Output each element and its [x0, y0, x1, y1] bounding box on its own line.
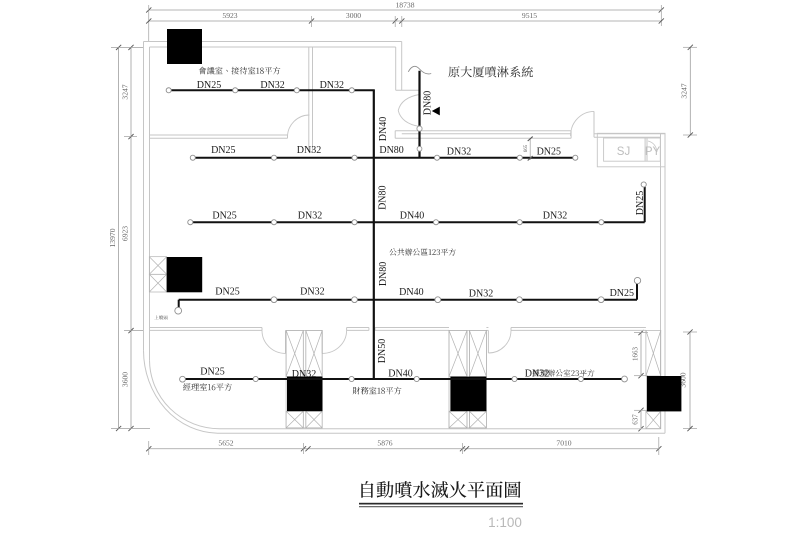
svg-text:3247: 3247: [680, 83, 689, 98]
svg-text:DN50: DN50: [377, 339, 388, 363]
svg-text:3600: 3600: [121, 372, 130, 387]
svg-text:DN40: DN40: [388, 369, 412, 380]
svg-text:DN32: DN32: [543, 211, 567, 222]
svg-text:13970: 13970: [108, 228, 117, 247]
svg-text:DN25: DN25: [200, 367, 224, 378]
svg-text:5923: 5923: [222, 11, 237, 20]
svg-text:DN80: DN80: [423, 91, 434, 115]
svg-text:1663: 1663: [631, 347, 639, 362]
svg-text:DN32: DN32: [298, 211, 322, 222]
svg-text:6923: 6923: [121, 226, 130, 241]
svg-text:3000: 3000: [346, 11, 361, 20]
svg-text:DN40: DN40: [378, 117, 389, 141]
svg-text:DN25: DN25: [215, 287, 239, 298]
svg-text:7010: 7010: [556, 439, 571, 448]
svg-text:9515: 9515: [522, 11, 537, 20]
svg-text:DN80: DN80: [379, 145, 403, 156]
svg-text:DN25: DN25: [537, 147, 561, 158]
svg-text:DN32: DN32: [300, 287, 324, 298]
svg-text:DN32: DN32: [447, 147, 471, 158]
svg-text:DN25: DN25: [212, 211, 236, 222]
svg-text:DN25: DN25: [197, 80, 221, 91]
svg-text:DN32: DN32: [320, 80, 344, 91]
svg-text:DN32: DN32: [292, 369, 316, 380]
svg-text:5652: 5652: [218, 439, 233, 448]
svg-text:DN40: DN40: [399, 287, 423, 298]
svg-text:5876: 5876: [377, 439, 392, 448]
svg-text:PY: PY: [645, 146, 661, 158]
svg-text:1:100: 1:100: [488, 515, 522, 530]
svg-text:DN32: DN32: [297, 145, 321, 156]
svg-text:DN25: DN25: [610, 288, 634, 299]
svg-text:DN80: DN80: [378, 262, 389, 286]
svg-text:DN40: DN40: [400, 211, 424, 222]
svg-text:SJ: SJ: [617, 146, 630, 158]
svg-text:DN32: DN32: [469, 289, 493, 300]
svg-text:637: 637: [631, 414, 639, 425]
svg-text:DN25: DN25: [635, 191, 646, 215]
svg-text:DN25: DN25: [211, 145, 235, 156]
svg-text:665: 665: [524, 144, 529, 152]
svg-text:3247: 3247: [121, 84, 130, 99]
svg-text:DN80: DN80: [378, 185, 389, 209]
svg-text:18738: 18738: [396, 1, 415, 10]
svg-text:DN32: DN32: [260, 80, 284, 91]
